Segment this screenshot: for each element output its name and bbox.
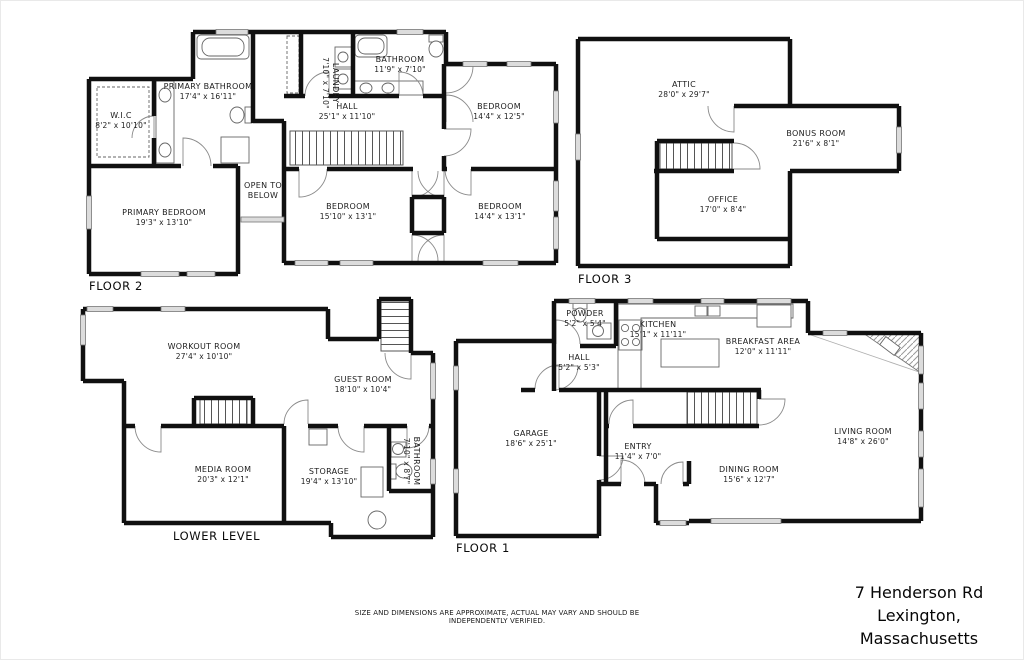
bathtub [197, 35, 249, 59]
stove [619, 320, 642, 350]
lower-fixtures [309, 429, 412, 529]
floor1-fixtures [573, 303, 921, 391]
stairs [687, 392, 757, 424]
kitchen-sink [708, 306, 720, 316]
shower [221, 137, 249, 163]
closet-dashed [97, 87, 149, 157]
sink [593, 326, 604, 337]
sink [382, 83, 394, 93]
utility-box [361, 467, 383, 497]
stairs [381, 301, 410, 351]
toilet-bowl [429, 41, 443, 57]
utility-box [309, 429, 327, 445]
floorplan-drawing [1, 1, 1024, 660]
floor2-plan [87, 30, 559, 277]
floor2-title: FLOOR 2 [89, 279, 143, 293]
sink [159, 88, 171, 102]
sink [393, 444, 404, 455]
toilet-bowl [574, 308, 586, 322]
closet-dashed [287, 36, 299, 93]
lower-level-title: LOWER LEVEL [173, 529, 260, 543]
railing [241, 217, 284, 222]
address-street: 7 Henderson Rd [831, 581, 1007, 604]
front-door [660, 521, 686, 526]
lower-level-plan [81, 299, 436, 537]
floor1-plan [454, 299, 924, 537]
kitchen-sink [695, 306, 707, 316]
fridge [757, 305, 791, 327]
kitchen-island [661, 339, 719, 367]
stairs [290, 131, 403, 165]
property-address: 7 Henderson Rd Lexington, Massachusetts [831, 581, 1007, 651]
floor3-title: FLOOR 3 [578, 272, 632, 286]
sink [159, 143, 171, 157]
sump-circle [368, 511, 386, 529]
washer [335, 47, 352, 67]
lower-walls [83, 299, 433, 537]
stairs [660, 143, 732, 169]
address-city: Lexington, Massachusetts [831, 604, 1007, 650]
floor1-title: FLOOR 1 [456, 541, 510, 555]
toilet-bowl [230, 107, 244, 123]
dryer [335, 69, 352, 89]
floorplan-sheet: PRIMARY BATHROOM 17'4" x 16'11" W.I.C 8'… [0, 0, 1024, 660]
floor3-plan [576, 39, 902, 266]
disclaimer-text: SIZE AND DIMENSIONS ARE APPROXIMATE, ACT… [351, 609, 643, 625]
toilet-bowl [396, 464, 412, 478]
floor3-walls [578, 39, 899, 266]
sink [360, 83, 372, 93]
stairs [200, 399, 247, 424]
